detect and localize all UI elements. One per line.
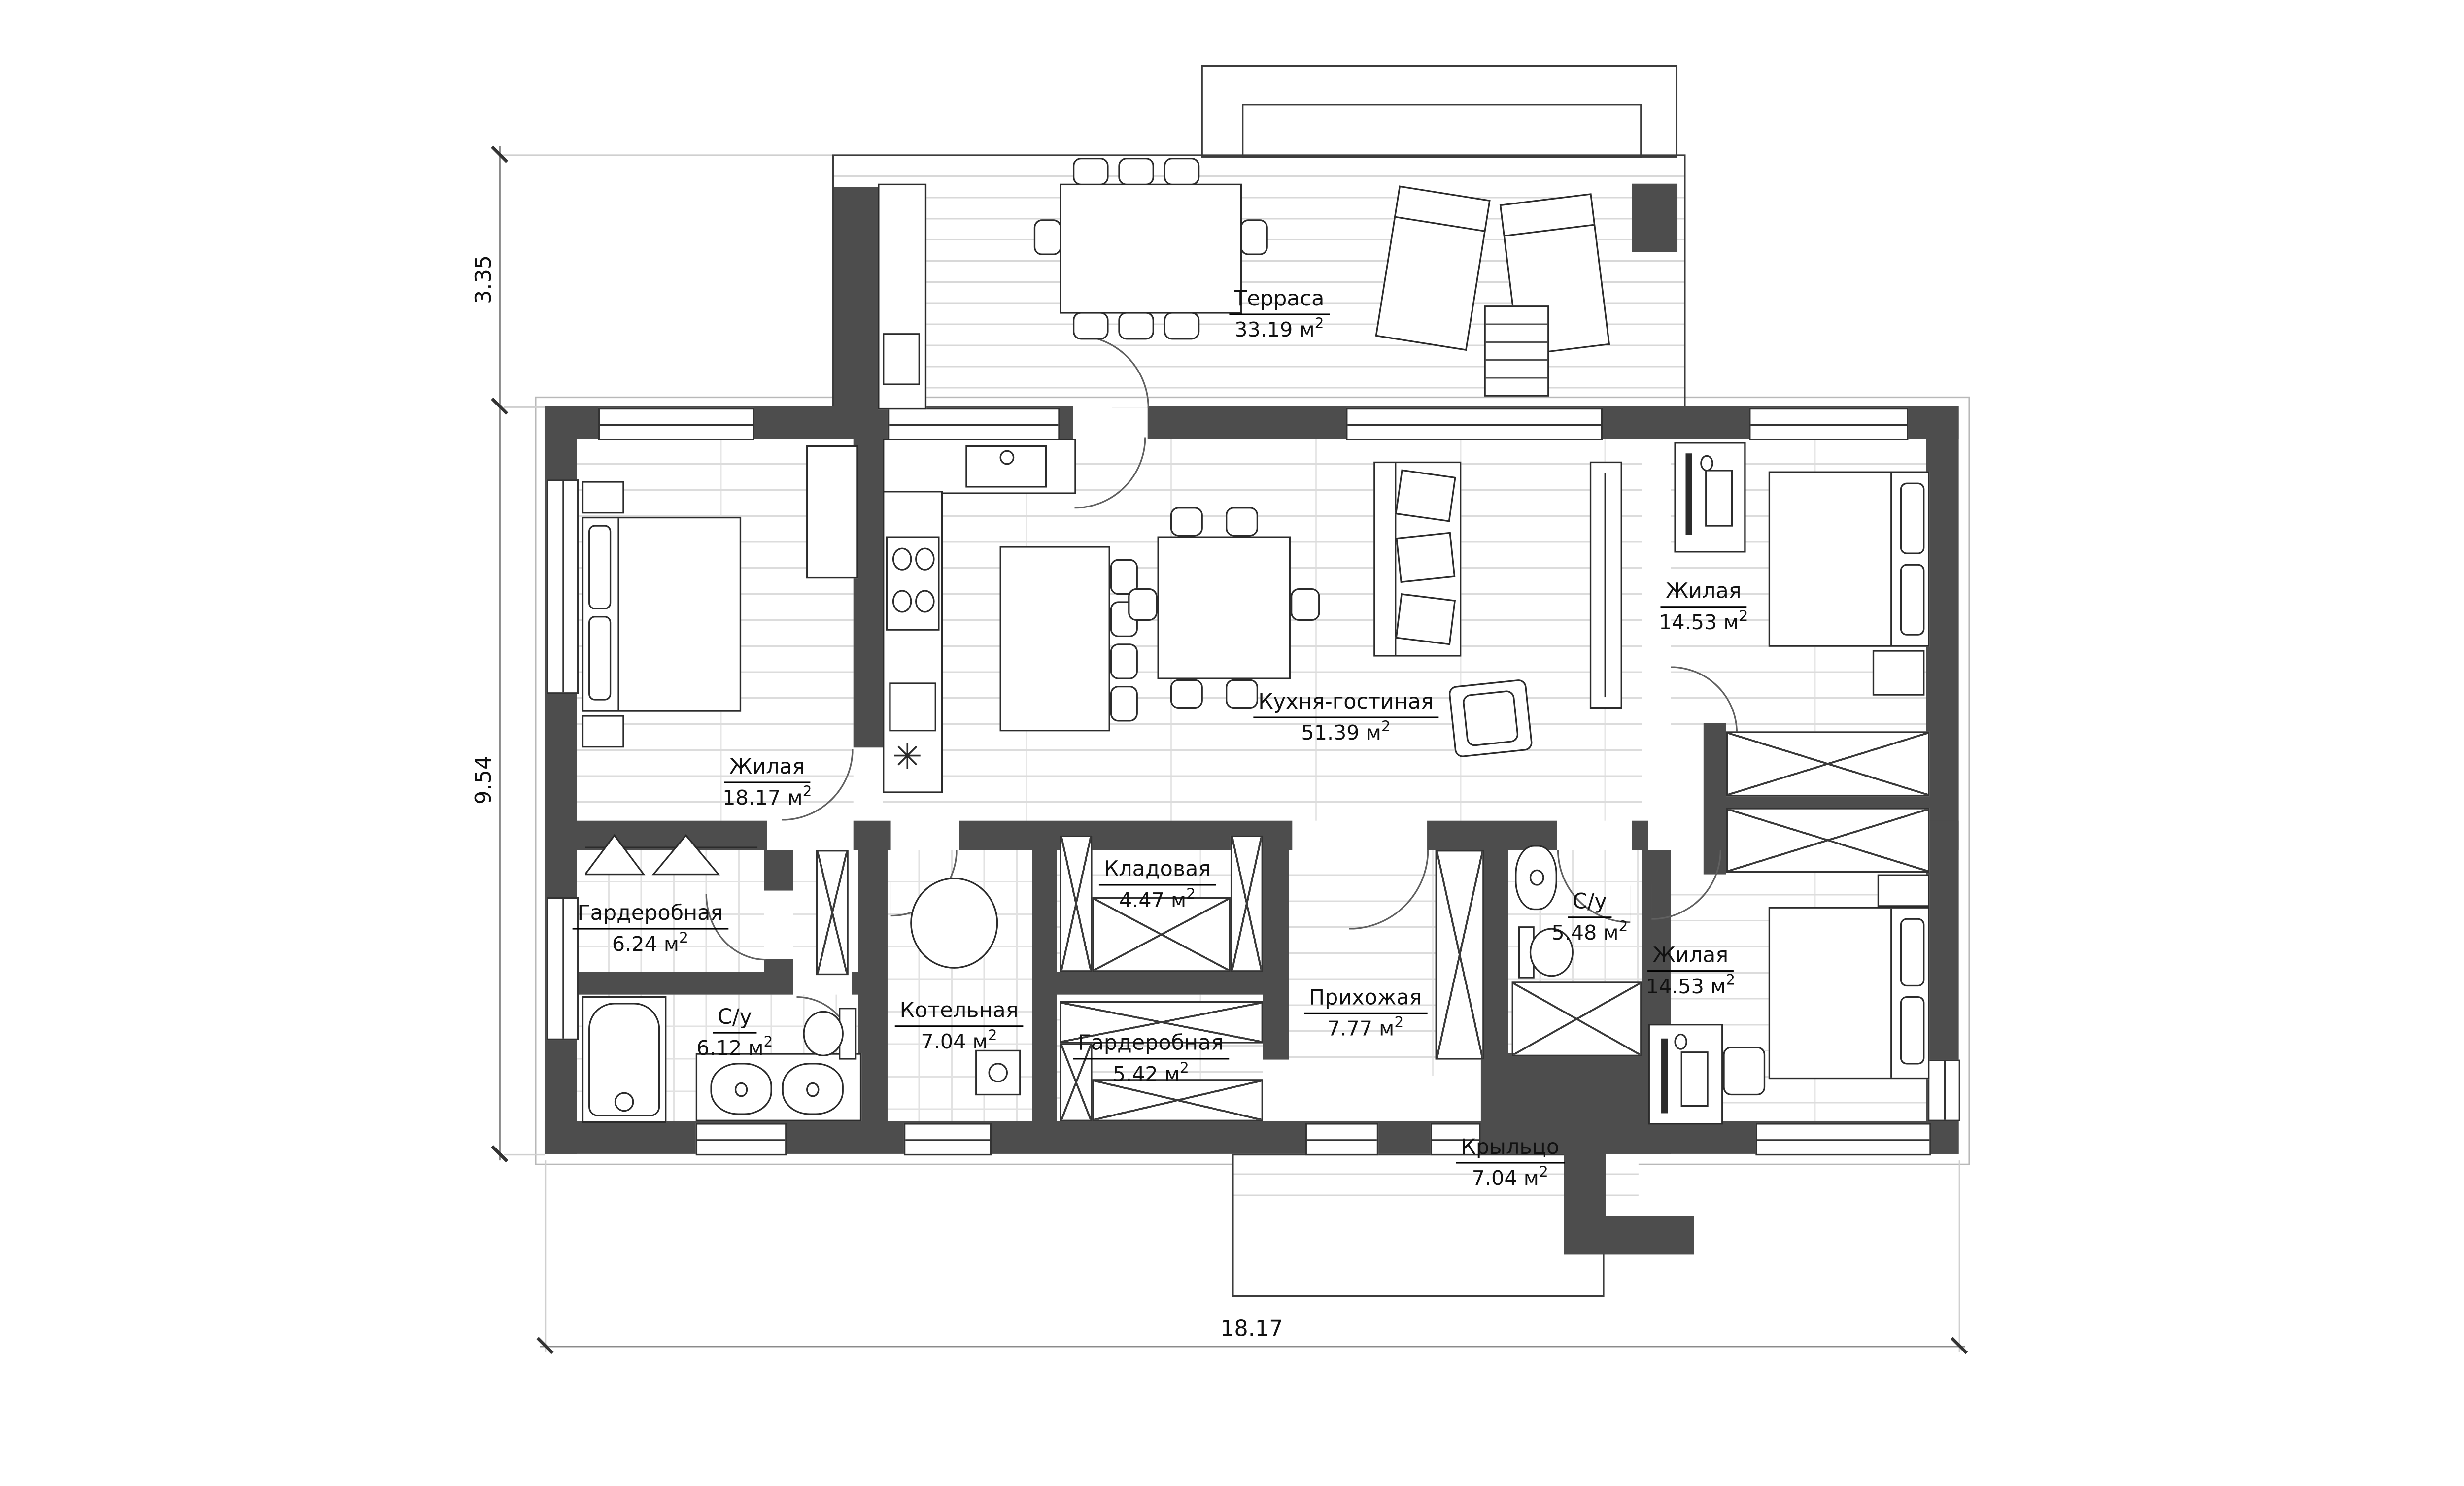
sink-drain [1530,870,1544,886]
sofa [1373,462,1461,657]
bathtub-faucet [615,1092,634,1112]
room-name: Кладовая [1099,860,1216,886]
area-unit: м [1379,1016,1394,1041]
room-name: Кухня-гостиная [1253,692,1438,719]
desk-bedroom1 [1674,442,1745,552]
pillow [1900,996,1924,1065]
nightstand [582,715,624,747]
keyboard [1705,470,1733,526]
room-name: Жилая [1648,946,1733,973]
area-sup: 2 [764,1036,773,1052]
terrace-steps [1484,305,1549,397]
room-area-value: 33.19 [1234,318,1293,342]
area-sup: 2 [1186,888,1196,904]
dimension-line-left [499,146,501,1160]
extension-line [1959,1160,1960,1352]
hanging-clothes [585,832,757,878]
burner [915,548,935,571]
sink-drain [735,1082,748,1097]
area-sup: 2 [803,785,812,802]
shaft-xbox [816,850,849,975]
dimension-line-bottom [540,1346,1965,1348]
snowflake-icon: ✳ [892,741,923,777]
room-name: Крыльцо [1456,1138,1564,1164]
faucet [1000,450,1015,465]
extension-line [504,1154,545,1155]
window-kitchen-terrace [888,408,1060,440]
wall-storage-left [1032,850,1057,1121]
window-hall-bottom-1 [1305,1123,1378,1155]
window-bedroom1-top [1749,408,1908,440]
burner [915,590,935,612]
kitchen-island [1000,546,1110,731]
pillow [588,616,611,701]
area-sup: 2 [988,1029,997,1046]
corridor-floor [793,850,816,972]
wall-bath612-top [577,972,793,994]
extension-line [545,1160,546,1352]
dining-table [1158,536,1291,679]
room-label-terrace: Терраса 33.19 м2 [1229,281,1329,343]
area-unit: м [1171,888,1186,912]
area-unit: м [973,1029,988,1053]
desk-bedroom2 [1648,1024,1723,1125]
room-name: Жилая [1661,582,1746,608]
wall-top [545,406,1959,439]
desk-chair [1723,1047,1765,1095]
room-area-value: 5.48 [1551,920,1597,945]
vanity-counter [696,1053,861,1121]
room-area: 7.04 м2 [895,1029,1024,1055]
bed-left [582,517,741,712]
room-area: 14.53 м2 [1646,974,1735,1000]
room-label-wardrobe542: Гардеробная 5.42 м2 [1073,1025,1229,1087]
wall-wardrobe624-right-top [764,850,793,890]
area-unit: м [1603,920,1618,945]
room-area: 4.47 м2 [1099,888,1216,913]
storage-shelf-left [1060,835,1093,972]
stove [886,536,940,630]
room-area-value: 7.77 [1327,1016,1372,1041]
window-boiler-bottom [904,1123,992,1155]
pillow [1900,483,1924,554]
toilet-bowl [803,1011,843,1056]
room-area: 6.24 м2 [573,932,728,957]
wall-divider-b [854,821,891,850]
room-area-value: 4.47 [1119,888,1164,912]
water-heater [910,878,998,969]
area-unit: м [1366,721,1381,745]
niche-wardrobe-bottom [1726,808,1929,873]
room-label-boiler: Котельная 7.04 м2 [895,993,1024,1055]
extension-line [504,406,545,408]
room-label-bedroom1: Жилая 14.53 м2 [1659,574,1748,636]
sink-drain [806,1082,819,1097]
dining-chair [1128,588,1157,621]
sink-548 [1515,845,1557,910]
area-unit: м [787,786,802,810]
terrace-chair [1118,312,1154,339]
room-label-bath548: С/у 5.48 м2 [1551,884,1628,946]
room-area-value: 14.53 [1646,974,1704,998]
room-area-value: 14.53 [1659,610,1717,634]
nightstand [1873,650,1925,695]
room-area: 5.42 м2 [1073,1062,1229,1087]
drain-circle [988,1063,1008,1082]
room-name: Гардеробная [573,904,728,930]
terrace-sink [883,333,920,385]
wall-wardrobe624-right-bot [764,959,793,972]
wall-storage-right [1263,850,1289,1060]
terrace-chair [1073,158,1109,185]
window-living-terrace [1346,408,1603,440]
sofa-cushion [1395,593,1456,645]
terrace-chair [1034,219,1061,255]
wall-divider-e [1632,821,1648,850]
dining-chair [1170,507,1203,536]
room-label-wardrobe624: Гардеробная 6.24 м2 [573,895,728,957]
dresser-left-bedroom [806,445,858,578]
window-bath612-bottom [696,1123,787,1155]
porch-wall-horizontal [1606,1216,1694,1254]
keyboard [1681,1051,1709,1107]
terrace-pier-right [1632,184,1677,252]
room-area: 51.39 м2 [1253,720,1438,746]
wall-bath612-right [858,850,888,1121]
dining-chair [1170,679,1203,709]
terrace-door-opening [1073,406,1148,439]
sofa-back-line [1395,463,1396,655]
room-area: 18.17 м2 [722,785,812,811]
blanket-line [617,518,619,710]
room-label-hall: Прихожая 7.77 м2 [1304,980,1427,1042]
area-sup: 2 [1394,1016,1403,1032]
wall-right [1926,406,1959,1154]
area-sup: 2 [1180,1062,1189,1078]
roof-outline-inner [1242,104,1642,158]
monitor [1661,1039,1668,1114]
room-label-bedroom-left: Жилая 18.17 м2 [722,749,812,811]
pillow [588,525,611,609]
bathtub [582,996,667,1123]
shower-box [1512,981,1642,1056]
pillow [1900,564,1924,636]
terrace-chair [1240,219,1268,255]
mouse [1674,1034,1687,1050]
lounger-backrest-line [1505,224,1594,236]
terrace-chair [1073,312,1109,339]
mouse [1700,455,1713,472]
area-unit: м [1711,974,1726,998]
fridge [889,682,936,731]
nightstand [582,481,624,513]
area-sup: 2 [1619,920,1628,937]
floor-plan-canvas: ✳ [0,0,2464,1486]
armchair-seat [1462,690,1519,747]
room-area-value: 7.04 [1472,1166,1517,1190]
room-label-kitchen-living: Кухня-гостиная 51.39 м2 [1253,684,1438,746]
area-unit: м [748,1036,763,1060]
room-label-porch: Крыльцо 7.04 м2 [1456,1129,1564,1191]
room-area-value: 18.17 [722,786,781,810]
room-name: Жилая [724,757,810,784]
room-name: Прихожая [1304,988,1427,1014]
terrace-chair [1164,158,1200,185]
room-area: 6.12 м2 [696,1036,773,1061]
room-name: Гардеробная [1073,1034,1229,1060]
dining-chair [1291,588,1320,621]
room-area-value: 7.04 [921,1029,966,1053]
bed-bedroom1 [1769,472,1930,647]
room-name: С/у [713,1008,757,1034]
area-sup: 2 [679,932,688,948]
window-bedroom2-bottom [1755,1123,1931,1155]
room-name: Котельная [895,1001,1024,1028]
dimension-terrace-depth: 3.35 [472,234,498,325]
blanket-line [1890,473,1892,645]
area-unit: м [1524,1166,1539,1190]
room-area: 7.77 м2 [1304,1016,1427,1042]
room-area: 5.48 м2 [1551,920,1628,946]
bar-stool [1110,686,1138,722]
terrace-chair [1164,312,1200,339]
kitchen-sink [965,445,1047,488]
wall-storage-wardrobe-divider [1057,972,1263,994]
room-label-storage: Кладовая 4.47 м2 [1099,851,1216,913]
terrace-chair [1118,158,1154,185]
window-bedroom2-side [1928,1060,1960,1121]
window-bedroom-left-top [598,408,754,440]
room-area-value: 5.42 [1113,1062,1158,1086]
sofa-cushion [1395,470,1456,522]
armchair [1448,678,1533,758]
tv-line [1605,473,1606,697]
monitor [1686,453,1692,535]
terrace-pier-left [834,187,878,406]
burner [892,548,912,571]
area-unit: м [1164,1062,1180,1086]
room-name: Терраса [1229,289,1329,316]
room-name: С/у [1568,892,1612,919]
room-area: 33.19 м2 [1229,317,1329,343]
burner [892,590,912,612]
dining-chair [1226,507,1258,536]
hall-wardrobe [1436,850,1484,1060]
dimension-house-depth: 9.54 [472,735,498,826]
room-label-bedroom2: Жилая 14.53 м2 [1646,938,1735,1000]
area-sup: 2 [1381,720,1391,737]
pillow [1900,918,1924,987]
area-sup: 2 [1739,610,1748,626]
lounger-backrest-line [1396,216,1484,232]
tv-unit [1590,462,1622,709]
wall-bath612-top-stub [852,972,858,994]
storage-shelf-right [1231,835,1263,972]
area-sup: 2 [1726,974,1735,990]
nightstand [1878,875,1930,907]
bed-bedroom2 [1769,907,1930,1080]
area-sup: 2 [1539,1166,1548,1182]
bar-stool [1110,643,1138,679]
window-bedroom-left-side [546,479,579,694]
room-area: 14.53 м2 [1659,610,1748,636]
wall-bath548-left [1481,850,1508,1053]
floor-drain [975,1050,1021,1095]
sofa-cushion [1396,532,1455,583]
dimension-house-width: 18.17 [1203,1317,1300,1343]
room-area-value: 6.24 [612,932,657,956]
area-sup: 2 [1315,317,1324,334]
room-area: 7.04 м2 [1456,1166,1564,1191]
niche-wardrobe-top [1726,731,1929,796]
room-label-bath612: С/у 6.12 м2 [696,999,773,1061]
terrace-table [1060,184,1242,314]
area-unit: м [1723,610,1739,634]
extension-line [499,154,832,156]
area-unit: м [664,932,679,956]
room-area-value: 51.39 [1301,721,1359,745]
room-area-value: 6.12 [696,1036,742,1060]
blanket-line [1890,909,1892,1078]
area-unit: м [1299,318,1314,342]
